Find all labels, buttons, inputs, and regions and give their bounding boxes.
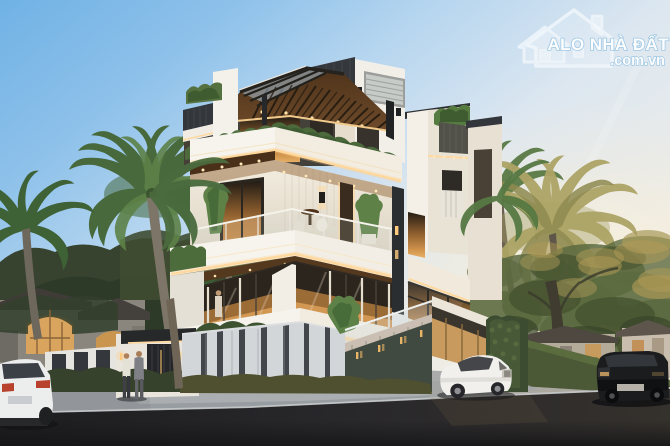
svg-text:.com.vn: .com.vn <box>610 53 665 69</box>
svg-text:ALO NHÀ ĐẤT: ALO NHÀ ĐẤT <box>548 35 670 54</box>
